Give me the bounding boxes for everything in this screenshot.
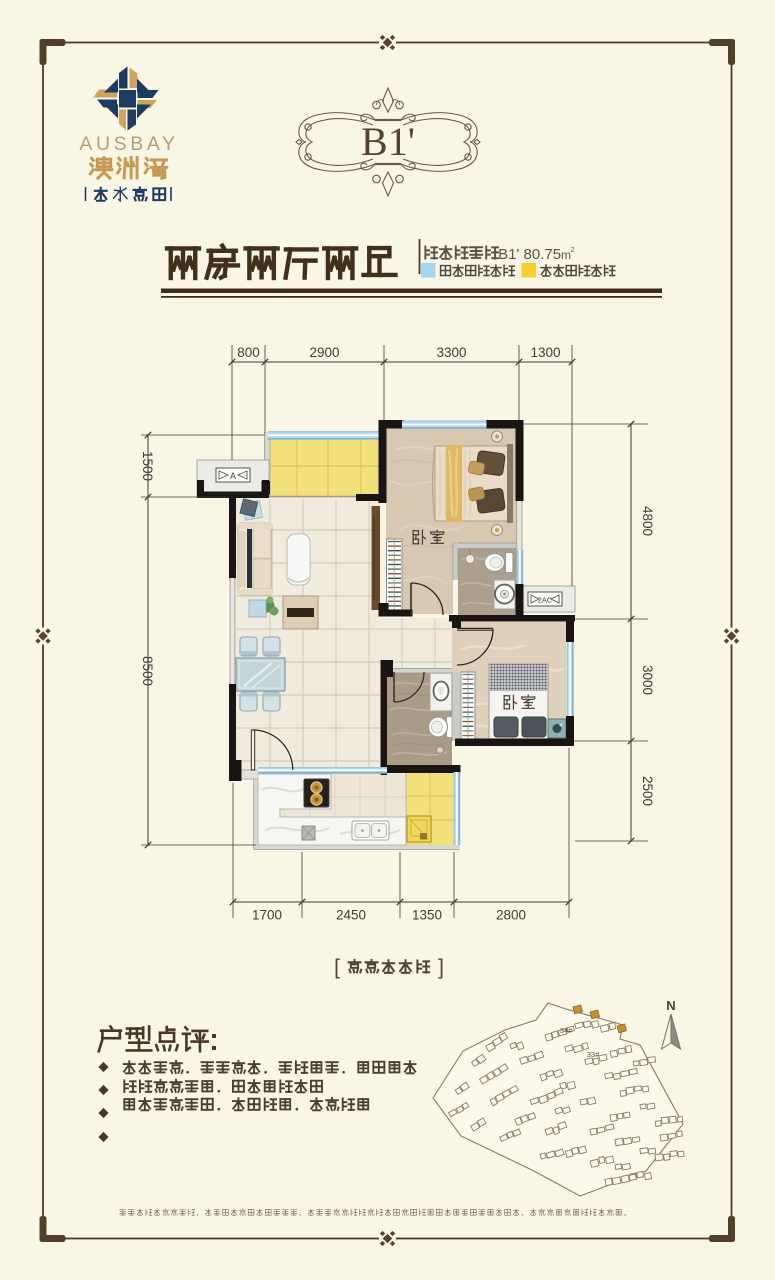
svg-text::B1' 80.75: :B1' 80.75	[494, 246, 561, 263]
svg-text:m: m	[561, 248, 571, 262]
svg-text:1500: 1500	[140, 451, 155, 481]
svg-text:4800: 4800	[640, 506, 655, 536]
svg-text:34#: 34#	[560, 1026, 573, 1035]
svg-text:33#: 33#	[587, 1050, 600, 1059]
svg-text:A: A	[230, 471, 236, 481]
svg-text:B1': B1'	[361, 119, 415, 164]
svg-text:2AC: 2AC	[538, 596, 553, 605]
svg-text:800: 800	[237, 345, 260, 360]
svg-text:2900: 2900	[309, 345, 339, 360]
svg-text:[: [	[334, 956, 340, 979]
svg-text:2500: 2500	[640, 776, 655, 806]
svg-text:1300: 1300	[530, 345, 560, 360]
svg-text:1700: 1700	[252, 908, 282, 923]
svg-text:1350: 1350	[412, 908, 442, 923]
svg-text:2800: 2800	[496, 908, 526, 923]
svg-text:AUSBAY: AUSBAY	[79, 133, 178, 155]
svg-text:8500: 8500	[140, 656, 155, 686]
svg-text:]: ]	[438, 956, 444, 979]
svg-text:3000: 3000	[640, 665, 655, 695]
svg-text:2: 2	[571, 245, 575, 254]
svg-text:N: N	[666, 998, 675, 1013]
svg-text:2450: 2450	[336, 908, 366, 923]
svg-text:3300: 3300	[436, 345, 466, 360]
